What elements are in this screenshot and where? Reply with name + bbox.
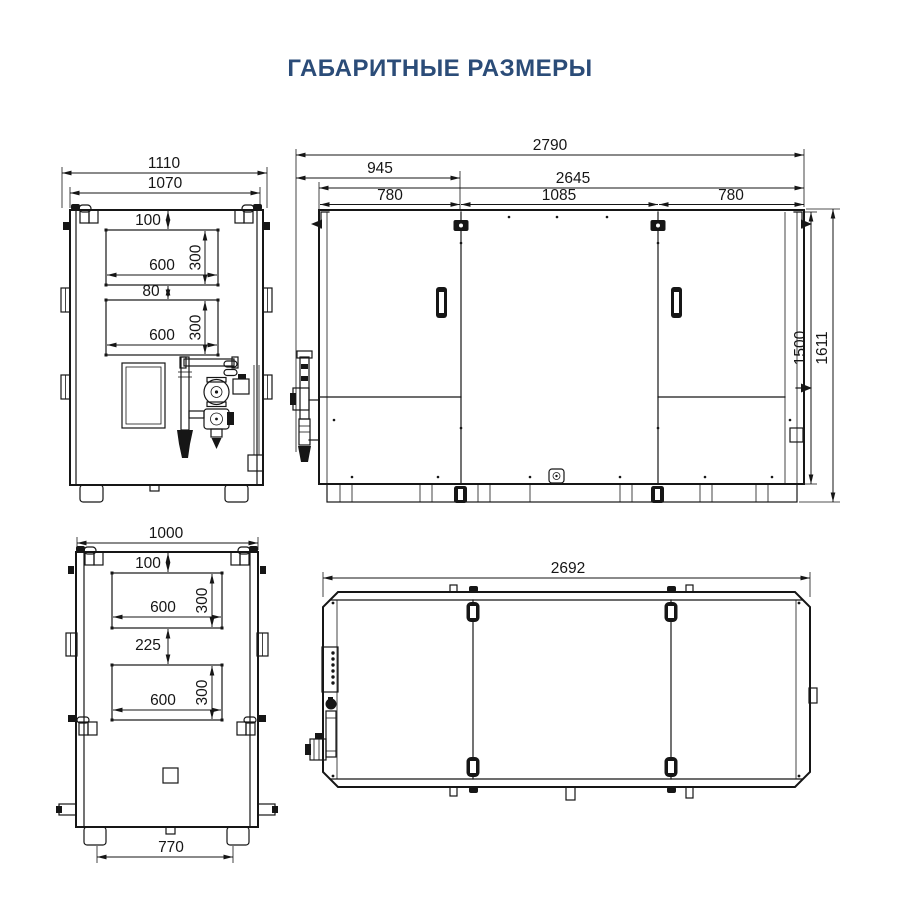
- dim-label: 2692: [551, 560, 585, 577]
- front-lifting-lug-left: [63, 204, 98, 230]
- side-access-port: [549, 469, 564, 483]
- top-hinge-tabs: [450, 585, 693, 800]
- dim-label: 300: [188, 244, 205, 270]
- rear-lifting-lug-top-left: [68, 546, 103, 574]
- side-pump-assembly: [290, 351, 319, 462]
- dim-label: 100: [135, 212, 161, 229]
- rear-body: [76, 552, 258, 827]
- dim-side-panel1: 780: [320, 187, 460, 205]
- front-pump-assembly: [177, 357, 249, 458]
- top-control-panel: [322, 647, 338, 692]
- dim-label: 225: [135, 637, 161, 654]
- dim-label: 80: [142, 283, 160, 300]
- dim-rear-opening2-height: 300: [194, 666, 212, 719]
- dim-label: 2645: [556, 170, 590, 187]
- side-body: [319, 210, 804, 484]
- drawing-sheet: ГАБАРИТНЫЕ РАЗМЕРЫ: [0, 0, 900, 900]
- side-panel-rivets: [333, 216, 792, 479]
- dim-label: 300: [194, 587, 211, 613]
- dim-label: 770: [158, 839, 184, 856]
- front-lifting-lug-right: [235, 204, 270, 230]
- dim-label: 1085: [542, 187, 576, 204]
- dim-rear-opening-gap: 225: [135, 629, 168, 664]
- top-view: 2692: [305, 560, 817, 800]
- rear-view: 1000 100 300 600 225 300: [56, 525, 278, 863]
- side-door-clamps: [454, 220, 666, 231]
- front-view: 1110 1070 100 300 600 80: [61, 155, 272, 502]
- dim-label: 600: [150, 599, 176, 616]
- side-view: 2790 945 2645 780 1085 780: [290, 137, 840, 503]
- dim-front-frame-width: 1070: [70, 175, 260, 208]
- dim-label: 100: [135, 555, 161, 572]
- rear-access-square: [163, 768, 178, 783]
- dim-label: 1500: [792, 330, 809, 365]
- front-right-rail: [248, 365, 263, 471]
- top-door-latches: [467, 586, 678, 793]
- dim-label: 780: [718, 187, 744, 204]
- rear-lifting-lug-top-right: [231, 546, 266, 574]
- front-body: [70, 210, 263, 485]
- dim-label: 1110: [148, 155, 181, 172]
- dim-side-overall-length: 2790: [296, 137, 804, 452]
- side-door-handles: [436, 287, 682, 318]
- dim-rear-opening1-height: 300: [194, 574, 212, 627]
- top-pump-assembly: [305, 697, 337, 760]
- dim-label: 300: [194, 679, 211, 705]
- dim-label: 780: [377, 187, 403, 204]
- dim-label: 300: [188, 314, 205, 340]
- dim-label: 600: [149, 327, 175, 344]
- rear-lower-handles: [56, 804, 278, 815]
- front-display-window: [122, 363, 165, 428]
- dim-rear-width: 1000: [77, 525, 258, 550]
- dim-label: 1070: [148, 175, 183, 192]
- side-right-bracket: [790, 428, 803, 442]
- side-base-frame: [327, 484, 797, 503]
- rear-side-handles: [66, 633, 268, 656]
- dim-side-panel2: 1085: [461, 187, 658, 205]
- dim-label: 945: [367, 160, 393, 177]
- rear-lifting-lug-mid-right: [237, 715, 266, 735]
- dim-label: 1611: [814, 331, 831, 364]
- dim-rear-feet-span: 770: [97, 839, 233, 863]
- dimensional-drawing: 1110 1070 100 300 600 80: [0, 0, 900, 900]
- dim-label: 600: [149, 257, 175, 274]
- rear-lifting-lug-mid-left: [68, 715, 97, 735]
- dim-label: 600: [150, 692, 176, 709]
- dim-front-opening1-height: 300: [188, 231, 206, 284]
- dim-label: 2790: [533, 137, 568, 154]
- dim-rear-top-offset: 100: [135, 553, 168, 572]
- dim-side-panel3: 780: [659, 187, 804, 205]
- top-body: [323, 592, 810, 787]
- side-corner-hooks: [311, 212, 812, 393]
- dim-front-top-offset: 100: [135, 211, 168, 229]
- front-feet: [80, 485, 248, 502]
- dim-label: 1000: [149, 525, 184, 542]
- dim-front-opening2-height: 300: [188, 301, 206, 354]
